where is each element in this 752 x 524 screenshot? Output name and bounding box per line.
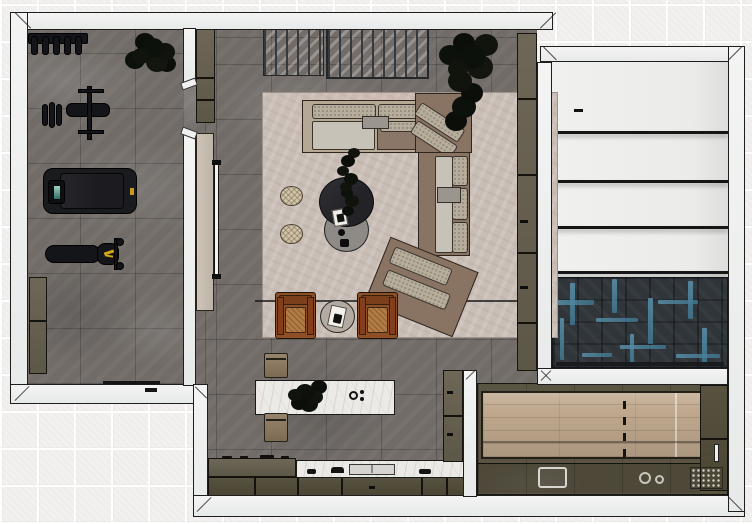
island-burner	[360, 397, 364, 401]
bench-lid-line	[266, 358, 286, 360]
shelf-line	[518, 174, 536, 176]
chair-seat	[367, 307, 388, 333]
cabinet-handle	[520, 286, 528, 289]
dumbbell	[42, 36, 49, 55]
wall-gym-partition	[183, 134, 196, 386]
island-decor	[288, 389, 302, 401]
parquet-highlight	[702, 328, 707, 364]
island-burner	[349, 391, 358, 400]
parquet-highlight	[676, 354, 720, 358]
wall-gym-bottom	[10, 384, 206, 404]
dumbbell	[53, 36, 60, 55]
tall-cabinet-left[interactable]	[196, 28, 215, 123]
cooktop-knob	[240, 456, 248, 459]
door-track-cap	[212, 274, 221, 279]
sink-divider	[371, 465, 373, 473]
white-steps[interactable]	[552, 62, 728, 277]
lane-gutter-line	[483, 441, 719, 443]
step-marker	[574, 109, 583, 112]
side-table-book	[327, 305, 347, 329]
brand-mark	[105, 254, 113, 257]
weight-plate	[49, 102, 55, 128]
gym-cabinet[interactable]	[29, 277, 47, 374]
chair-arm	[389, 297, 396, 335]
shelf-line	[197, 99, 214, 101]
counter-object	[419, 469, 431, 474]
shelf-line	[197, 77, 214, 79]
wall-rightroom-left	[537, 62, 552, 384]
parquet-highlight	[612, 279, 617, 313]
cooktop-knob	[260, 455, 274, 459]
cabinet-handle	[520, 220, 528, 223]
bench-press-bar	[78, 130, 104, 134]
bar-glass	[655, 475, 664, 484]
bench-lid-line	[266, 419, 286, 421]
bench-wheel	[116, 262, 124, 270]
treadmill-badge	[130, 188, 134, 195]
cabinet-divider	[297, 478, 299, 495]
parquet-highlight	[560, 318, 564, 360]
armchair[interactable]	[275, 292, 316, 339]
island-bench[interactable]	[264, 353, 288, 378]
herringbone-baseline	[556, 362, 724, 366]
parquet-highlight	[556, 300, 594, 305]
sofa-back-cushion	[452, 156, 468, 186]
kitchen-island[interactable]	[255, 380, 395, 415]
parquet-highlight	[648, 298, 653, 344]
parquet-highlight	[596, 318, 638, 322]
wall-games-left	[463, 370, 477, 497]
bar-glass	[639, 472, 651, 484]
armchair[interactable]	[357, 292, 398, 339]
cooktop-counter[interactable]	[208, 458, 296, 477]
cabinet-divider	[446, 478, 448, 495]
island-burner	[360, 390, 364, 394]
bar-accessories	[690, 467, 723, 489]
counter-object	[331, 467, 344, 473]
weight-plate	[42, 104, 48, 126]
wall-mid-right	[537, 368, 728, 385]
tall-cabinet-right[interactable]	[517, 33, 537, 371]
wall-left	[10, 12, 28, 404]
cabinet-divider	[421, 478, 423, 495]
shelf-line	[30, 320, 46, 322]
pouf[interactable]	[280, 186, 303, 206]
chair-arm	[277, 297, 284, 335]
floor-plan-canvas	[0, 0, 752, 524]
wall-bottom	[193, 495, 745, 517]
floor-plant[interactable]	[448, 60, 468, 78]
sofa-seat-cushion	[435, 156, 453, 253]
dumbbell	[31, 36, 38, 55]
lane-line	[675, 393, 677, 457]
door-track	[214, 163, 219, 276]
cabinet-handle	[447, 433, 453, 436]
parquet-highlight	[620, 345, 666, 349]
shelf-line	[444, 415, 462, 417]
side-table[interactable]	[320, 300, 355, 333]
step-edge	[552, 271, 728, 274]
threshold-line	[103, 381, 160, 384]
wall-top	[10, 12, 553, 30]
counter-object	[307, 469, 316, 474]
pantry-column[interactable]	[443, 370, 463, 462]
bar-tray	[538, 467, 567, 488]
dumbbell	[75, 36, 82, 55]
island-bench[interactable]	[264, 413, 288, 442]
parquet-highlight	[630, 334, 634, 364]
step-edge	[552, 226, 728, 229]
foul-line	[623, 393, 626, 457]
table-object	[338, 229, 345, 236]
treadmill-screen	[53, 185, 61, 200]
sofa-right-section[interactable]	[418, 152, 470, 256]
bench-pad	[45, 245, 101, 263]
book-motif	[333, 313, 343, 323]
sofa-corner-section[interactable]	[415, 93, 472, 153]
sofa-back-cushion	[452, 222, 468, 253]
wall-right-outer	[728, 46, 745, 512]
parquet-highlight	[582, 353, 612, 357]
bar-counter[interactable]	[477, 463, 700, 493]
wall-rightroom-top	[540, 46, 745, 62]
coffee-table-plant	[340, 182, 352, 192]
cooktop-knob	[222, 456, 232, 459]
dumbbell	[64, 36, 71, 55]
bench-wheel	[116, 238, 124, 246]
chair-arm	[359, 297, 366, 335]
cabinet-handle	[447, 391, 453, 394]
chair-seat	[285, 307, 306, 333]
weight-bench[interactable]	[45, 238, 123, 272]
sofa-tray-table	[362, 116, 389, 129]
base-cabinets[interactable]	[208, 477, 465, 496]
gym-plant[interactable]	[132, 48, 150, 64]
step-edge	[552, 131, 728, 134]
step-edge	[552, 180, 728, 183]
shelf-line	[518, 322, 536, 324]
sink-counter[interactable]	[296, 460, 464, 478]
sofa-tray-table	[437, 187, 461, 203]
shelf-line	[518, 252, 536, 254]
kitchen-sink	[349, 464, 395, 475]
parquet-highlight	[658, 300, 698, 304]
door-handle	[145, 388, 157, 392]
bench-press-bar	[78, 89, 104, 93]
cooktop-knob	[281, 456, 289, 459]
treadmill-belt	[60, 173, 124, 209]
pouf[interactable]	[280, 224, 303, 244]
shuffleboard-lane[interactable]	[481, 391, 721, 459]
glass-partition[interactable]	[263, 26, 324, 76]
book-motif	[336, 213, 344, 222]
shelf-line	[518, 98, 536, 100]
cabinet-divider	[341, 478, 343, 495]
table-book	[332, 208, 349, 227]
treadmill[interactable]	[43, 168, 137, 214]
treadmill-console	[48, 180, 65, 204]
shelf-line	[701, 438, 727, 440]
chair-arm	[307, 297, 314, 335]
table-object	[340, 239, 349, 247]
door-track-cap	[212, 160, 221, 165]
bench-press[interactable]	[40, 86, 112, 142]
cabinet-handle	[369, 486, 375, 489]
lane-scoreboard	[714, 444, 719, 462]
cabinet-divider	[254, 478, 256, 495]
weight-plate	[56, 104, 62, 126]
